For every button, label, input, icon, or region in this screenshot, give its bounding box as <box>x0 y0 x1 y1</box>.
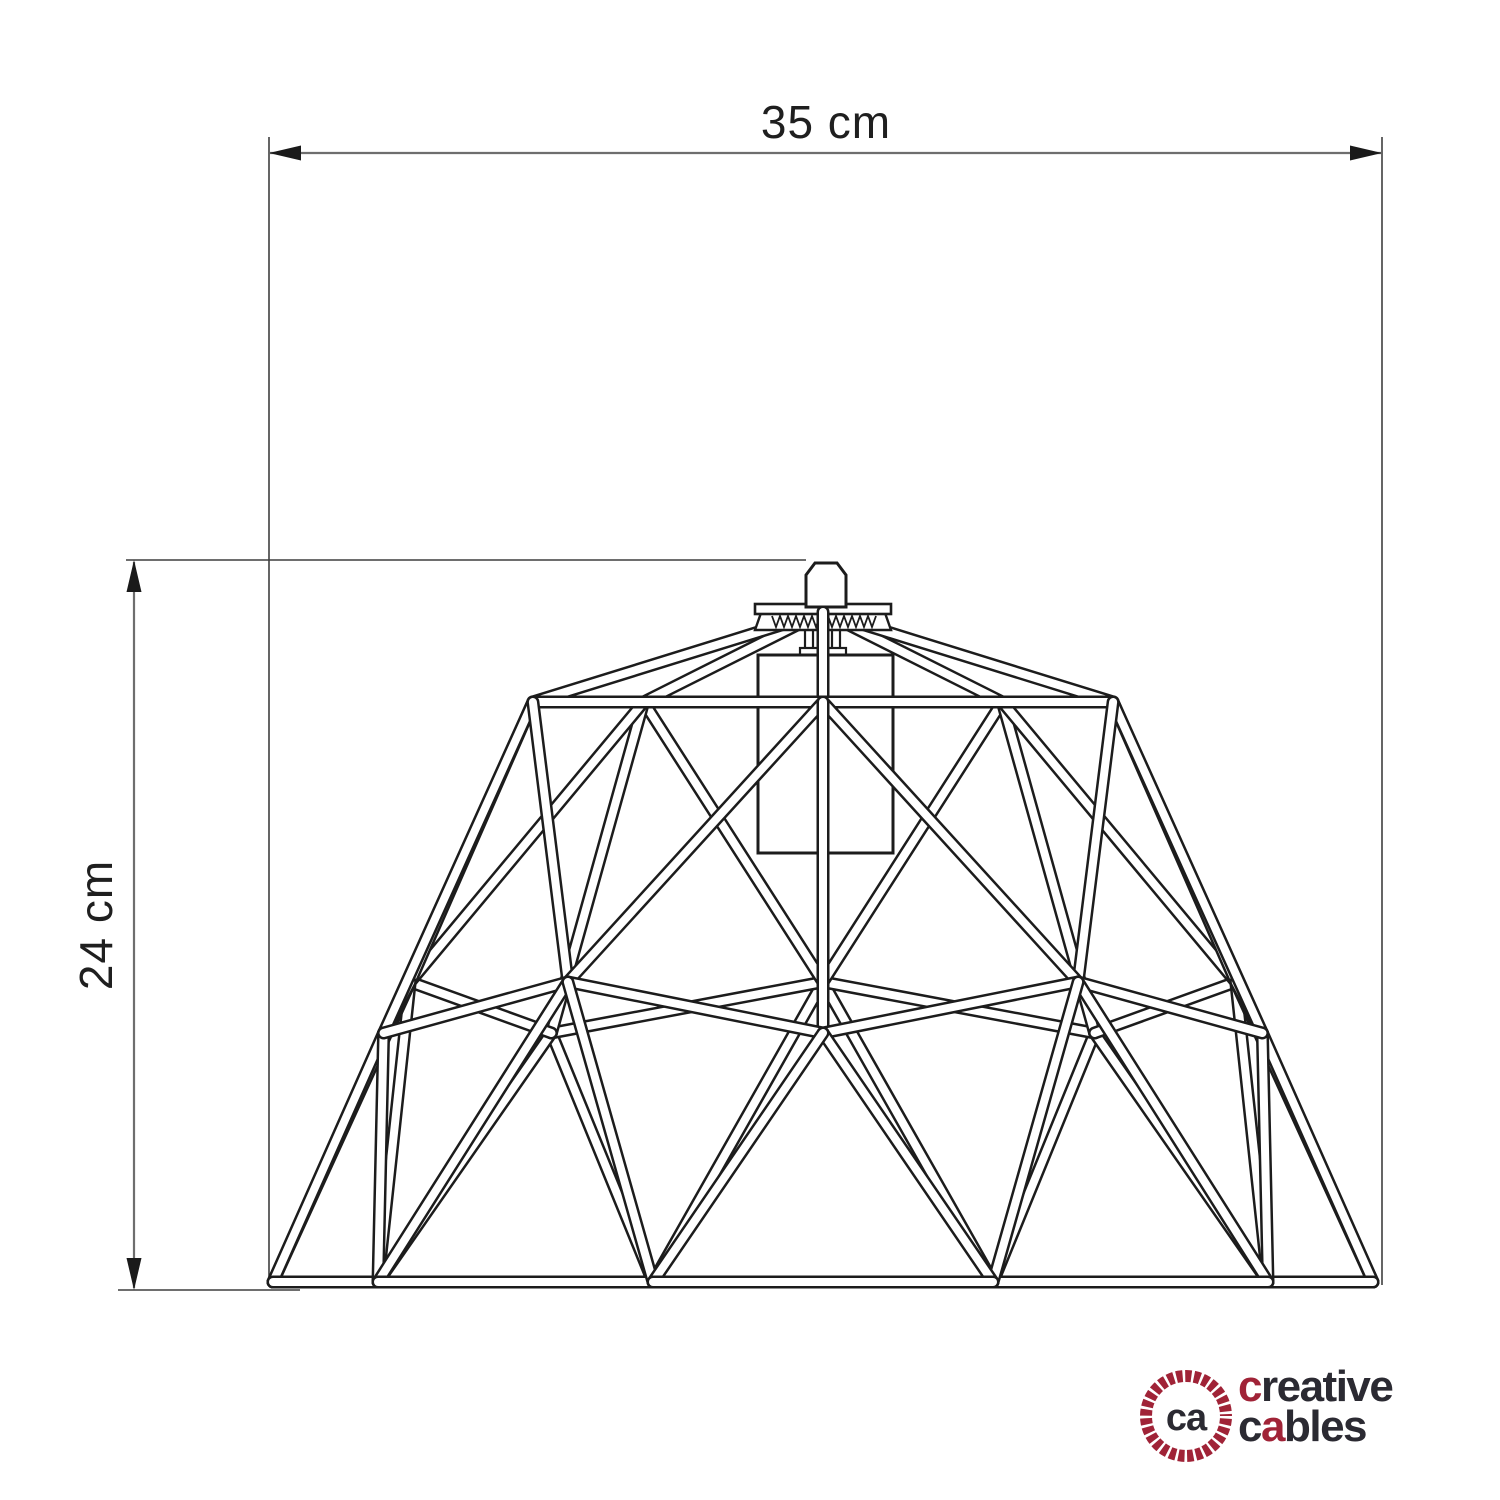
logo-wordmark: creative cables <box>1238 1367 1392 1447</box>
cage-strut <box>1262 1033 1268 1282</box>
cage-strut <box>533 702 568 982</box>
logo: ca creative cables <box>1128 1358 1458 1478</box>
cage-strut <box>378 1033 384 1282</box>
arrow-down-icon <box>127 1258 142 1290</box>
logo-letter: c <box>1238 1402 1261 1451</box>
cable-gland-body <box>806 563 846 607</box>
cage-strut <box>1078 702 1113 982</box>
arrow-right-icon <box>1350 146 1382 161</box>
cage-strut <box>823 1033 993 1282</box>
cable-gland <box>806 563 846 607</box>
logo-word-creative: creative <box>1238 1367 1392 1407</box>
logo-rope-circle: ca <box>1128 1358 1233 1468</box>
logo-word-cables: cables <box>1238 1407 1392 1447</box>
cage-strut <box>1262 1033 1373 1282</box>
arrow-up-icon <box>127 560 142 592</box>
cage-strut <box>273 1033 384 1282</box>
logo-letters: bles <box>1284 1402 1366 1451</box>
diagram-page: 35 cm 24 cm <box>0 0 1500 1500</box>
logo-letter: a <box>1261 1402 1284 1451</box>
height-label: 24 cm <box>70 860 122 990</box>
cage-strut <box>653 1033 823 1282</box>
logo-monogram: ca <box>1166 1397 1208 1439</box>
arrow-left-icon <box>269 146 301 161</box>
technical-drawing: 35 cm 24 cm <box>0 0 1500 1500</box>
width-label: 35 cm <box>761 96 891 148</box>
